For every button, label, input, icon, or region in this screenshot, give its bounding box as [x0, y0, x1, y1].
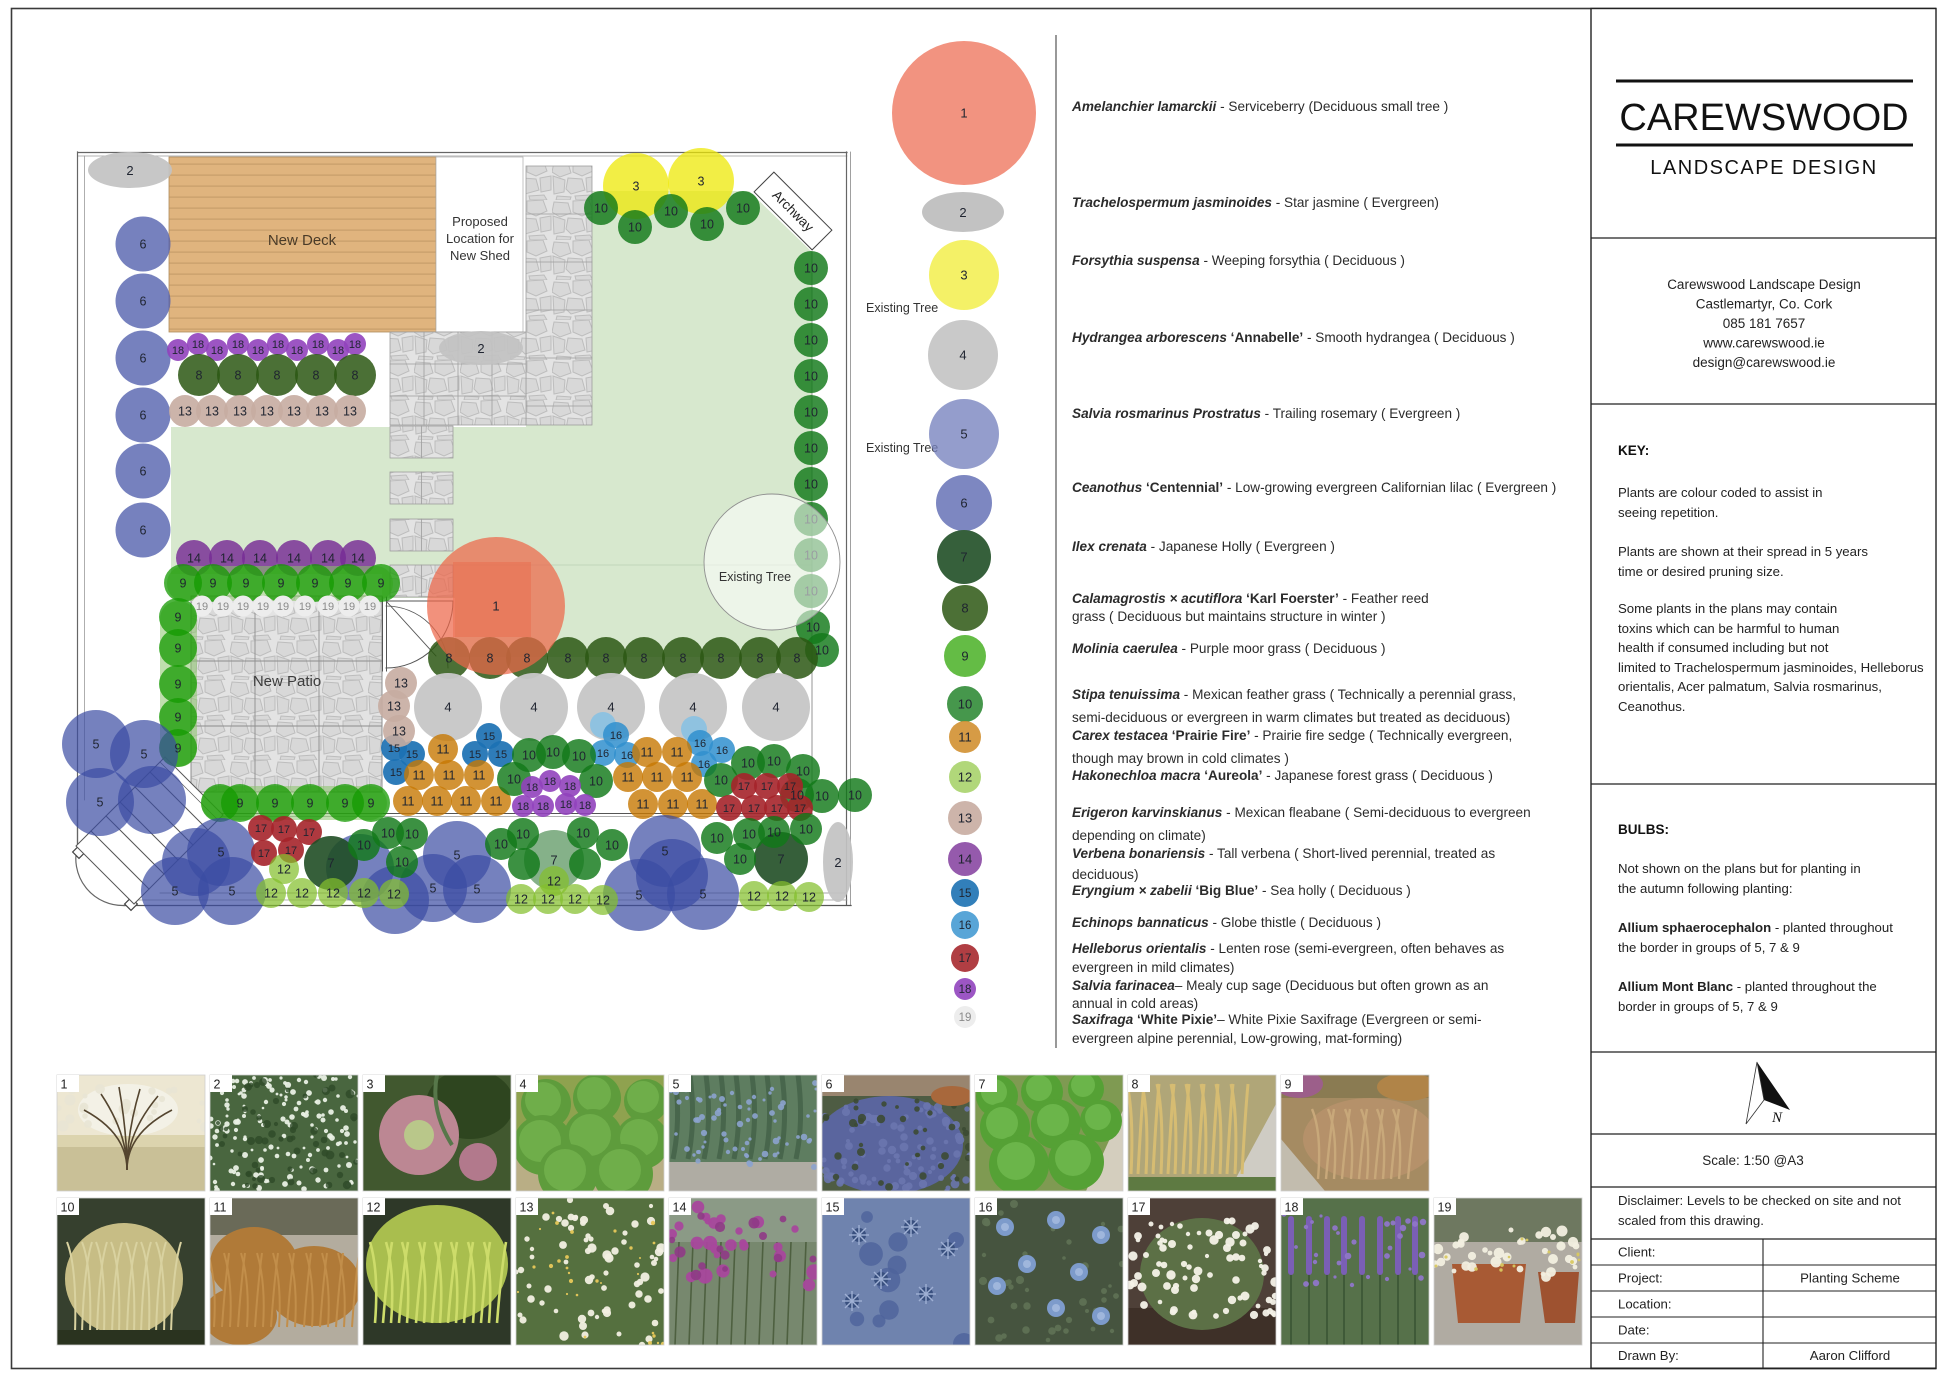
- svg-text:10: 10: [516, 828, 530, 842]
- svg-text:12: 12: [295, 887, 309, 901]
- svg-text:Stipa tenuissima - Mexican fea: Stipa tenuissima - Mexican feather grass…: [1072, 687, 1516, 702]
- svg-text:6: 6: [140, 465, 147, 479]
- svg-text:8: 8: [757, 652, 764, 666]
- svg-text:3: 3: [698, 175, 705, 189]
- svg-text:15: 15: [469, 749, 481, 761]
- svg-text:11: 11: [431, 795, 444, 809]
- svg-text:Ceanothus ‘Centennial’ - Low-g: Ceanothus ‘Centennial’ - Low-growing eve…: [1072, 480, 1556, 495]
- svg-text:12: 12: [541, 893, 555, 907]
- svg-text:15: 15: [959, 888, 972, 900]
- svg-text:CAREWSWOOD: CAREWSWOOD: [1619, 97, 1908, 139]
- svg-text:10: 10: [741, 757, 755, 771]
- svg-text:11: 11: [958, 730, 972, 745]
- svg-text:5: 5: [218, 846, 225, 860]
- svg-text:10: 10: [61, 1201, 75, 1215]
- svg-text:11: 11: [437, 743, 450, 757]
- svg-text:17: 17: [723, 803, 735, 815]
- svg-text:19: 19: [322, 601, 334, 613]
- svg-text:17: 17: [771, 803, 783, 815]
- svg-text:6: 6: [826, 1078, 833, 1092]
- svg-text:11: 11: [443, 769, 456, 783]
- svg-text:4: 4: [959, 348, 966, 363]
- svg-text:10: 10: [522, 749, 536, 763]
- svg-text:19: 19: [277, 601, 289, 613]
- svg-text:9: 9: [175, 611, 182, 625]
- svg-text:12: 12: [326, 887, 340, 901]
- svg-text:15: 15: [390, 767, 402, 779]
- svg-text:12: 12: [596, 894, 610, 908]
- svg-text:18: 18: [172, 345, 184, 357]
- svg-text:18: 18: [272, 339, 284, 351]
- svg-text:8: 8: [794, 652, 801, 666]
- svg-text:16: 16: [698, 759, 710, 771]
- svg-text:11: 11: [671, 746, 684, 760]
- svg-text:11: 11: [214, 1201, 227, 1215]
- svg-text:border in groups of 5, 7 & 9: border in groups of 5, 7 & 9: [1618, 999, 1778, 1014]
- svg-text:18: 18: [517, 801, 529, 813]
- svg-text:10: 10: [605, 839, 619, 853]
- svg-text:the autumn following planting:: the autumn following planting:: [1618, 881, 1792, 896]
- svg-text:11: 11: [473, 769, 486, 783]
- svg-text:17: 17: [761, 781, 773, 793]
- svg-text:Salvia rosmarinus Prostratus -: Salvia rosmarinus Prostratus - Trailing …: [1072, 406, 1460, 421]
- svg-text:Location:: Location:: [1618, 1297, 1672, 1312]
- svg-text:6: 6: [140, 295, 147, 309]
- svg-text:10: 10: [700, 218, 714, 232]
- svg-text:2: 2: [959, 205, 966, 220]
- svg-text:12: 12: [357, 887, 371, 901]
- svg-text:N: N: [1771, 1110, 1783, 1126]
- svg-text:17: 17: [738, 781, 750, 793]
- svg-text:18: 18: [544, 776, 556, 788]
- svg-text:4: 4: [530, 700, 537, 715]
- svg-text:4: 4: [520, 1078, 527, 1092]
- svg-text:2: 2: [126, 163, 133, 178]
- svg-text:10: 10: [804, 478, 818, 492]
- svg-text:Castlemartyr, Co. Cork: Castlemartyr, Co. Cork: [1696, 297, 1833, 312]
- svg-text:13: 13: [392, 725, 406, 739]
- svg-text:15: 15: [495, 749, 507, 761]
- svg-text:12: 12: [747, 890, 761, 904]
- svg-text:toxins which can be harmful to: toxins which can be harmful to human: [1618, 621, 1839, 636]
- svg-text:10: 10: [804, 442, 818, 456]
- svg-text:16: 16: [979, 1201, 993, 1215]
- svg-text:10: 10: [815, 790, 829, 804]
- svg-text:5: 5: [93, 738, 100, 752]
- svg-text:Eryngium × zabelii ‘Big Blue’: Eryngium × zabelii ‘Big Blue’ - Sea holl…: [1072, 883, 1411, 898]
- svg-text:7: 7: [960, 550, 967, 565]
- svg-text:14: 14: [958, 852, 972, 867]
- svg-text:19: 19: [196, 601, 208, 613]
- svg-text:14: 14: [321, 552, 335, 566]
- svg-text:8: 8: [603, 652, 610, 666]
- svg-text:12: 12: [264, 887, 278, 901]
- svg-text:14: 14: [351, 552, 365, 566]
- svg-text:9: 9: [378, 577, 385, 591]
- svg-text:11: 11: [460, 795, 473, 809]
- svg-text:Location for: Location for: [446, 231, 515, 246]
- svg-text:scaled from this drawing.: scaled from this drawing.: [1618, 1213, 1764, 1228]
- svg-text:Some plants in the plans may c: Some plants in the plans may contain: [1618, 601, 1837, 616]
- svg-text:13: 13: [387, 700, 401, 714]
- svg-text:10: 10: [815, 644, 829, 658]
- svg-text:18: 18: [211, 345, 223, 357]
- svg-text:9: 9: [175, 711, 182, 725]
- svg-text:Date:: Date:: [1618, 1323, 1650, 1338]
- svg-text:Molinia caerulea - Purple moor: Molinia caerulea - Purple moor grass ( D…: [1072, 641, 1386, 656]
- svg-text:4: 4: [607, 700, 614, 715]
- svg-text:5: 5: [172, 885, 179, 899]
- svg-text:10: 10: [589, 775, 603, 789]
- svg-text:17: 17: [303, 827, 315, 839]
- svg-text:085 181 7657: 085 181 7657: [1723, 316, 1806, 331]
- svg-text:10: 10: [733, 853, 747, 867]
- svg-text:7: 7: [550, 853, 557, 868]
- svg-text:5: 5: [229, 885, 236, 899]
- svg-text:9: 9: [272, 797, 279, 811]
- svg-text:semi-deciduous or evergreen in: semi-deciduous or evergreen in warm clim…: [1072, 710, 1510, 725]
- svg-text:10: 10: [804, 262, 818, 276]
- svg-text:10: 10: [628, 221, 642, 235]
- svg-text:New Patio: New Patio: [253, 673, 321, 690]
- svg-text:19: 19: [299, 601, 311, 613]
- svg-text:8: 8: [487, 652, 494, 666]
- svg-text:Calamagrostis × acutiflora ‘Ka: Calamagrostis × acutiflora ‘Karl Foerste…: [1072, 591, 1429, 606]
- svg-text:16: 16: [716, 745, 728, 757]
- svg-text:10: 10: [494, 838, 508, 852]
- svg-text:18: 18: [192, 339, 204, 351]
- svg-text:3: 3: [633, 180, 640, 194]
- svg-text:Plants are colour coded to ass: Plants are colour coded to assist in: [1618, 485, 1823, 500]
- svg-text:8: 8: [235, 369, 242, 383]
- svg-text:11: 11: [651, 771, 664, 785]
- svg-text:10: 10: [804, 298, 818, 312]
- svg-text:Hakonechloa macra ‘Aureola’ -: Hakonechloa macra ‘Aureola’ - Japanese f…: [1072, 768, 1493, 783]
- svg-text:5: 5: [700, 888, 707, 902]
- svg-text:12: 12: [568, 893, 582, 907]
- svg-text:6: 6: [140, 352, 147, 366]
- svg-text:Aaron Clifford: Aaron Clifford: [1810, 1348, 1890, 1363]
- svg-text:8: 8: [680, 652, 687, 666]
- svg-text:12: 12: [958, 770, 972, 785]
- svg-text:15: 15: [406, 749, 418, 761]
- svg-text:Amelanchier lamarckii - Servic: Amelanchier lamarckii - Serviceberry (De…: [1071, 99, 1448, 114]
- svg-text:10: 10: [804, 406, 818, 420]
- svg-text:annual in cold areas): annual in cold areas): [1072, 996, 1198, 1011]
- svg-text:18: 18: [560, 799, 572, 811]
- svg-text:9: 9: [307, 797, 314, 811]
- svg-text:8: 8: [313, 369, 320, 383]
- svg-text:Verbena bonariensis - Tall ver: Verbena bonariensis - Tall verbena ( Sho…: [1072, 846, 1495, 861]
- svg-text:8: 8: [718, 652, 725, 666]
- svg-text:8: 8: [524, 652, 531, 666]
- svg-text:19: 19: [959, 1012, 972, 1024]
- svg-text:Disclaimer: Levels to be check: Disclaimer: Levels to be checked on site…: [1618, 1193, 1901, 1208]
- svg-text:7: 7: [979, 1078, 986, 1092]
- svg-text:deciduous): deciduous): [1072, 867, 1139, 882]
- svg-text:Saxifraga ‘White Pixie’– White: Saxifraga ‘White Pixie’– White Pixie Sax…: [1072, 1012, 1482, 1027]
- svg-text:11: 11: [641, 746, 654, 760]
- svg-text:17: 17: [278, 824, 290, 836]
- svg-text:2: 2: [834, 855, 841, 870]
- svg-text:18: 18: [537, 801, 549, 813]
- svg-text:18: 18: [252, 345, 264, 357]
- svg-text:10: 10: [572, 750, 586, 764]
- svg-text:Existing Tree: Existing Tree: [866, 301, 938, 315]
- svg-text:13: 13: [958, 811, 972, 826]
- svg-text:19: 19: [364, 601, 376, 613]
- svg-text:Drawn By:: Drawn By:: [1618, 1348, 1679, 1363]
- svg-text:2: 2: [477, 341, 484, 356]
- svg-text:www.carewswood.ie: www.carewswood.ie: [1702, 336, 1825, 351]
- svg-text:18: 18: [332, 345, 344, 357]
- svg-text:5: 5: [673, 1078, 680, 1092]
- svg-text:16: 16: [597, 748, 609, 760]
- svg-text:depending on climate): depending on climate): [1072, 828, 1206, 843]
- svg-text:10: 10: [799, 823, 813, 837]
- svg-text:13: 13: [343, 405, 357, 419]
- svg-text:18: 18: [291, 345, 303, 357]
- svg-text:Carex testacea ‘Prairie Fire’: Carex testacea ‘Prairie Fire’ - Prairie …: [1072, 728, 1512, 743]
- svg-text:limited to Trachelospermum jas: limited to Trachelospermum jasminoides, …: [1618, 660, 1924, 675]
- svg-text:health if consumed including b: health if consumed including but not: [1618, 640, 1829, 655]
- svg-text:design@carewswood.ie: design@carewswood.ie: [1693, 355, 1836, 370]
- svg-text:12: 12: [387, 888, 401, 902]
- svg-text:16: 16: [610, 730, 622, 742]
- svg-text:18: 18: [526, 782, 538, 794]
- svg-text:16: 16: [959, 920, 972, 932]
- svg-text:9: 9: [237, 797, 244, 811]
- svg-text:10: 10: [767, 755, 781, 769]
- svg-text:15: 15: [826, 1201, 840, 1215]
- svg-text:8: 8: [641, 652, 648, 666]
- svg-text:17: 17: [1132, 1201, 1146, 1215]
- svg-text:though may brown in cold clima: though may brown in cold climates ): [1072, 751, 1289, 766]
- svg-text:3: 3: [367, 1078, 374, 1092]
- svg-text:10: 10: [405, 828, 419, 842]
- svg-text:13: 13: [233, 405, 247, 419]
- svg-text:9: 9: [175, 742, 182, 756]
- svg-text:17: 17: [748, 803, 760, 815]
- svg-text:8: 8: [961, 601, 968, 616]
- svg-text:19: 19: [1438, 1201, 1452, 1215]
- svg-text:11: 11: [413, 769, 426, 783]
- svg-text:18: 18: [232, 339, 244, 351]
- svg-text:18: 18: [579, 800, 591, 812]
- svg-text:9: 9: [1285, 1078, 1292, 1092]
- svg-text:11: 11: [490, 795, 503, 809]
- svg-text:evergreen in mild climates): evergreen in mild climates): [1072, 960, 1234, 975]
- svg-text:8: 8: [196, 369, 203, 383]
- svg-text:16: 16: [694, 738, 706, 750]
- svg-text:10: 10: [742, 828, 756, 842]
- svg-text:11: 11: [402, 795, 415, 809]
- svg-text:14: 14: [187, 552, 201, 566]
- svg-text:Trachelospermum jasminoides -: Trachelospermum jasminoides - Star jasmi…: [1072, 195, 1439, 210]
- svg-text:9: 9: [180, 577, 187, 591]
- svg-text:17: 17: [258, 848, 270, 860]
- svg-text:1: 1: [61, 1078, 68, 1092]
- svg-text:9: 9: [342, 797, 349, 811]
- svg-text:Forsythia suspensa - Weeping f: Forsythia suspensa - Weeping forsythia (…: [1072, 253, 1405, 268]
- svg-text:Allium sphaerocephalon - plant: Allium sphaerocephalon - planted through…: [1618, 920, 1893, 935]
- svg-text:5: 5: [474, 883, 481, 897]
- svg-text:12: 12: [367, 1201, 381, 1215]
- svg-text:8: 8: [274, 369, 281, 383]
- svg-text:14: 14: [253, 552, 267, 566]
- svg-text:Erigeron karvinskianus - Mexic: Erigeron karvinskianus - Mexican fleaban…: [1072, 805, 1531, 820]
- svg-text:Hydrangea arborescens ‘Annabel: Hydrangea arborescens ‘Annabelle’ - Smoo…: [1072, 330, 1515, 345]
- svg-text:4: 4: [444, 700, 451, 715]
- svg-text:19: 19: [217, 601, 229, 613]
- svg-text:13: 13: [520, 1201, 534, 1215]
- svg-text:10: 10: [804, 370, 818, 384]
- svg-text:4: 4: [689, 700, 696, 715]
- svg-text:1: 1: [492, 599, 499, 614]
- svg-text:9: 9: [345, 577, 352, 591]
- svg-text:1: 1: [960, 106, 967, 121]
- svg-text:10: 10: [710, 832, 724, 846]
- svg-text:17: 17: [285, 845, 297, 857]
- svg-text:6: 6: [140, 524, 147, 538]
- svg-text:Allium Mont Blanc - planted th: Allium Mont Blanc - planted throughout t…: [1618, 979, 1877, 994]
- svg-text:KEY:: KEY:: [1618, 443, 1649, 458]
- svg-text:19: 19: [257, 601, 269, 613]
- svg-text:time or desired pruning size.: time or desired pruning size.: [1618, 564, 1784, 579]
- svg-text:11: 11: [681, 771, 694, 785]
- svg-text:5: 5: [454, 849, 461, 863]
- svg-text:5: 5: [662, 845, 669, 859]
- svg-text:11: 11: [622, 771, 635, 785]
- svg-text:10: 10: [395, 856, 409, 870]
- svg-text:Existing Tree: Existing Tree: [866, 441, 938, 455]
- svg-text:4: 4: [772, 700, 779, 715]
- svg-text:10: 10: [507, 773, 521, 787]
- svg-text:13: 13: [178, 405, 192, 419]
- svg-text:16: 16: [621, 750, 633, 762]
- svg-text:10: 10: [796, 765, 810, 779]
- svg-text:15: 15: [483, 731, 495, 743]
- svg-text:11: 11: [637, 798, 650, 812]
- svg-text:Scale: 1:50 @A3: Scale: 1:50 @A3: [1702, 1153, 1804, 1168]
- svg-text:10: 10: [594, 202, 608, 216]
- svg-text:9: 9: [175, 642, 182, 656]
- svg-text:13: 13: [394, 677, 408, 691]
- svg-text:10: 10: [736, 202, 750, 216]
- svg-text:18: 18: [349, 339, 361, 351]
- svg-text:2: 2: [214, 1078, 221, 1092]
- svg-text:14: 14: [220, 552, 234, 566]
- svg-text:Project:: Project:: [1618, 1271, 1663, 1286]
- svg-text:Carewswood Landscape Design: Carewswood Landscape Design: [1667, 277, 1861, 292]
- svg-text:7: 7: [777, 852, 784, 867]
- svg-text:LANDSCAPE DESIGN: LANDSCAPE DESIGN: [1650, 157, 1877, 179]
- svg-text:8: 8: [446, 652, 453, 666]
- svg-text:Client:: Client:: [1618, 1245, 1655, 1260]
- svg-text:10: 10: [806, 621, 820, 635]
- svg-text:seeing repetition.: seeing repetition.: [1618, 505, 1718, 520]
- svg-text:10: 10: [664, 205, 678, 219]
- svg-text:18: 18: [564, 781, 576, 793]
- svg-text:10: 10: [767, 826, 781, 840]
- svg-text:Planting Scheme: Planting Scheme: [1800, 1271, 1900, 1286]
- svg-text:12: 12: [277, 863, 291, 877]
- svg-text:10: 10: [714, 774, 728, 788]
- svg-text:9: 9: [175, 678, 182, 692]
- svg-text:Not shown on the plans but for: Not shown on the plans but for planting …: [1618, 861, 1861, 876]
- svg-text:Ilex crenata - Japanese Holly: Ilex crenata - Japanese Holly ( Evergree…: [1072, 539, 1335, 554]
- svg-text:New Deck: New Deck: [268, 232, 337, 249]
- svg-text:19: 19: [237, 601, 249, 613]
- svg-text:14: 14: [287, 552, 301, 566]
- svg-text:9: 9: [243, 577, 250, 591]
- svg-text:14: 14: [673, 1201, 687, 1215]
- svg-text:orientalis, Acer palmatum, Sal: orientalis, Acer palmatum, Salvia rosmar…: [1618, 679, 1882, 694]
- svg-text:Proposed: Proposed: [452, 214, 508, 229]
- svg-text:13: 13: [260, 405, 274, 419]
- svg-text:12: 12: [775, 890, 789, 904]
- svg-text:10: 10: [357, 839, 371, 853]
- svg-text:17: 17: [784, 781, 796, 793]
- svg-text:5: 5: [960, 427, 967, 442]
- svg-text:9: 9: [278, 577, 285, 591]
- svg-text:Ceanothus.: Ceanothus.: [1618, 699, 1685, 714]
- svg-text:6: 6: [960, 496, 967, 511]
- svg-text:12: 12: [514, 893, 528, 907]
- svg-text:8: 8: [565, 652, 572, 666]
- svg-text:9: 9: [312, 577, 319, 591]
- svg-text:17: 17: [255, 823, 267, 835]
- svg-text:13: 13: [315, 405, 329, 419]
- svg-text:17: 17: [794, 803, 806, 815]
- svg-text:13: 13: [287, 405, 301, 419]
- svg-text:Plants are shown at their spre: Plants are shown at their spread in 5 ye…: [1618, 544, 1868, 559]
- svg-text:19: 19: [343, 601, 355, 613]
- svg-text:8: 8: [352, 369, 359, 383]
- svg-text:12: 12: [802, 891, 816, 905]
- svg-text:the border in groups of 5, 7 &: the border in groups of 5, 7 & 9: [1618, 940, 1800, 955]
- svg-text:10: 10: [848, 789, 862, 803]
- svg-text:15: 15: [388, 743, 400, 755]
- svg-text:Echinops bannaticus - Globe th: Echinops bannaticus - Globe thistle ( De…: [1072, 915, 1381, 930]
- svg-text:BULBS:: BULBS:: [1618, 822, 1669, 837]
- svg-text:5: 5: [636, 889, 643, 903]
- svg-text:Existing Tree: Existing Tree: [719, 570, 791, 584]
- svg-text:18: 18: [1285, 1201, 1299, 1215]
- svg-text:New Shed: New Shed: [450, 248, 510, 263]
- svg-text:18: 18: [312, 339, 324, 351]
- svg-text:11: 11: [667, 798, 680, 812]
- svg-text:6: 6: [140, 238, 147, 252]
- svg-text:Salvia farinacea– Mealy cup sa: Salvia farinacea– Mealy cup sage (Decidu…: [1072, 978, 1488, 993]
- svg-text:5: 5: [430, 882, 437, 896]
- svg-text:3: 3: [960, 268, 967, 283]
- svg-text:5: 5: [97, 796, 104, 810]
- svg-text:9: 9: [961, 649, 968, 664]
- svg-text:10: 10: [381, 827, 395, 841]
- svg-text:11: 11: [696, 798, 709, 812]
- svg-text:18: 18: [959, 984, 972, 996]
- svg-text:17: 17: [959, 953, 972, 965]
- svg-text:10: 10: [576, 827, 590, 841]
- svg-text:9: 9: [368, 797, 375, 811]
- svg-text:grass ( Deciduous but maintain: grass ( Deciduous but maintains structur…: [1072, 609, 1386, 624]
- svg-text:12: 12: [547, 875, 561, 889]
- svg-text:10: 10: [546, 746, 560, 760]
- svg-text:9: 9: [210, 577, 217, 591]
- svg-text:8: 8: [1132, 1078, 1139, 1092]
- svg-text:5: 5: [141, 748, 148, 762]
